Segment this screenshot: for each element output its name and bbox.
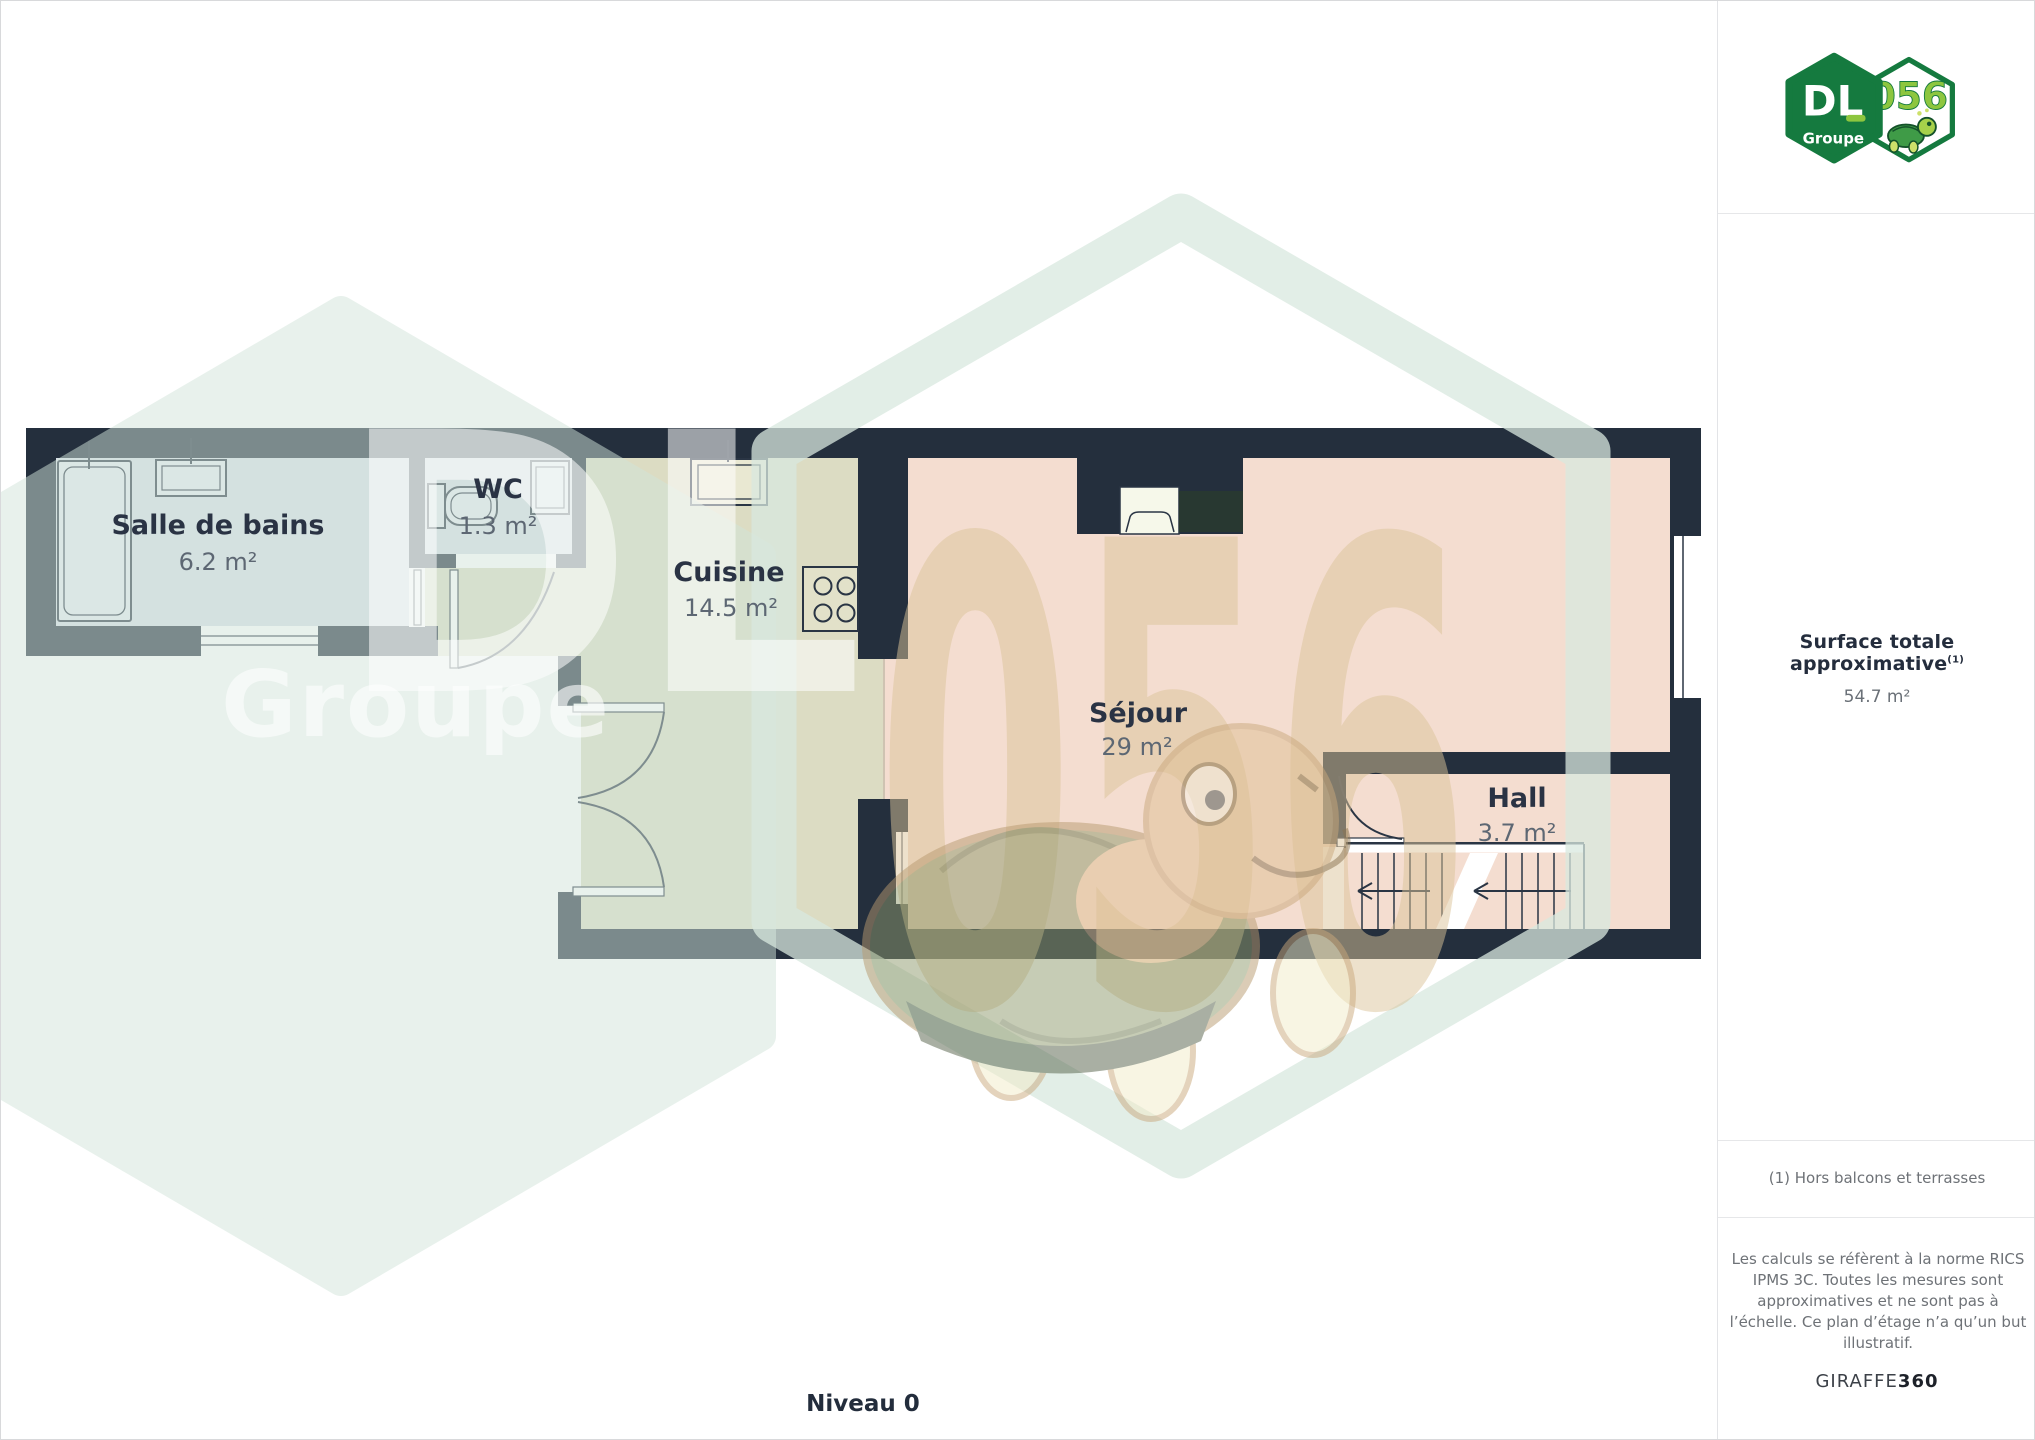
brand-giraffe360: GIRAFFE360 xyxy=(1718,1371,2035,1392)
surface-total-sup: (1) xyxy=(1947,655,1964,666)
area-wc: 1.3 m² xyxy=(459,512,538,540)
surface-total-block: Surface totale approximative(1) 54.7 m² xyxy=(1718,631,2035,707)
floor-plan: DL Groupe 056 Salle de bains 6. xyxy=(26,424,1706,964)
footnote: (1) Hors balcons et terrasses xyxy=(1718,1169,2035,1187)
sidebar: 056 DL xyxy=(1717,1,2035,1440)
watermarks: DL Groupe 056 xyxy=(0,216,1588,1281)
divider-footnote-top xyxy=(1718,1140,2035,1141)
logo-groupe-text: Groupe xyxy=(1803,129,1864,147)
logo-lime-accent xyxy=(1846,115,1865,122)
disclaimer: Les calculs se réfèrent à la norme RICS … xyxy=(1728,1249,2028,1354)
level-label: Niveau 0 xyxy=(763,1391,963,1417)
surface-total-value: 54.7 m² xyxy=(1718,687,2035,707)
brand-text-bold: 360 xyxy=(1898,1371,1939,1392)
floorplan-page: DL Groupe 056 Salle de bains 6. xyxy=(0,0,2035,1440)
floor-plan-svg: DL Groupe 056 Salle de bains 6. xyxy=(26,424,1706,964)
divider-footnote-bottom xyxy=(1718,1217,2035,1218)
dl-groupe-056-logo: 056 DL xyxy=(1780,43,1975,173)
label-sejour: Séjour xyxy=(1089,698,1188,729)
surface-total-label: Surface totale approximative(1) xyxy=(1718,631,2035,675)
label-wc: WC xyxy=(473,474,523,505)
logo-hexagon-dl: DL Groupe xyxy=(1789,56,1879,159)
window-sejour-right xyxy=(1674,536,1701,698)
label-salle-de-bains: Salle de bains xyxy=(111,510,324,541)
area-cuisine: 14.5 m² xyxy=(684,594,778,622)
area-sejour: 29 m² xyxy=(1101,733,1172,761)
label-hall: Hall xyxy=(1487,783,1546,814)
label-cuisine: Cuisine xyxy=(673,557,784,588)
watermark-groupe-text: Groupe xyxy=(221,651,611,758)
divider-logo xyxy=(1718,213,2035,214)
area-salle-de-bains: 6.2 m² xyxy=(179,548,258,576)
surface-total-label-text: Surface totale approximative xyxy=(1790,631,1954,675)
brand-text: GIRAFFE xyxy=(1815,1371,1897,1392)
area-hall: 3.7 m² xyxy=(1478,819,1557,847)
